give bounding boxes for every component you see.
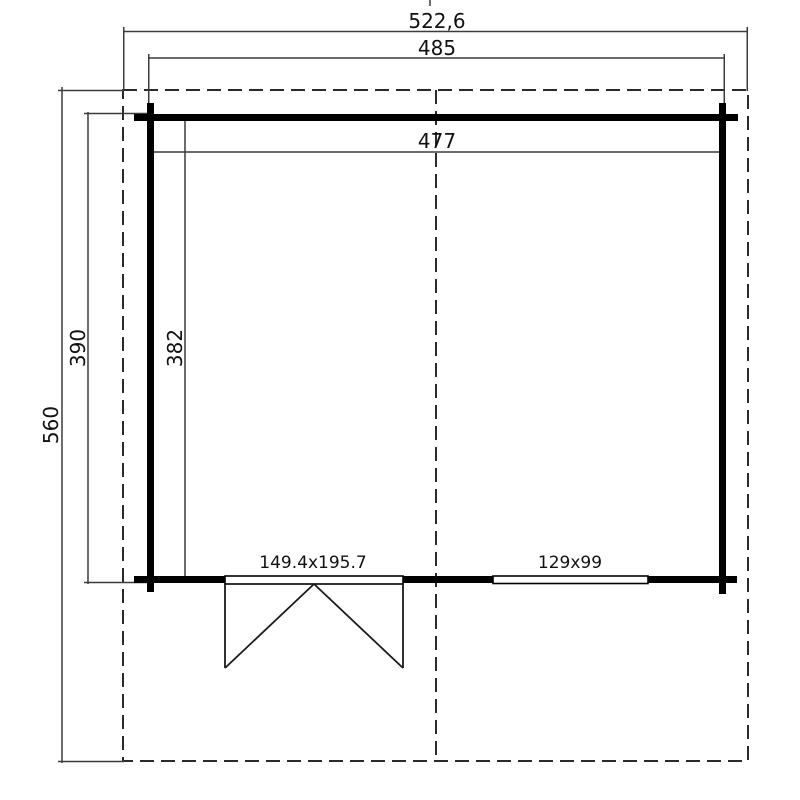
door-leaf-right-swing [314, 584, 403, 668]
window-frame [493, 576, 648, 584]
door-frame [225, 576, 403, 584]
door-size-label: 149.4x195.7 [259, 553, 366, 573]
dimension-total-depth: 560 [39, 87, 124, 763]
door-leaf-left-swing [225, 584, 314, 668]
dimension-label-total-depth: 560 [39, 406, 63, 444]
front-window: 129x99 [493, 553, 648, 584]
dimension-inner-depth: 382 [163, 116, 187, 579]
floor-plan-drawing: 522,6 485 477 560 390 [0, 0, 800, 800]
dimension-label-outer-width: 485 [418, 36, 456, 60]
floor-plan-canvas: 522,6 485 477 560 390 [0, 0, 800, 800]
dimension-label-inner-depth: 382 [163, 329, 187, 367]
dimension-label-inner-width: 477 [418, 129, 456, 153]
double-door: 149.4x195.7 [225, 553, 403, 668]
dimension-label-total-width: 522,6 [408, 9, 465, 33]
dimension-inner-width: 477 [151, 129, 722, 153]
dimension-outer-depth: 390 [66, 112, 148, 584]
window-size-label: 129x99 [538, 553, 602, 573]
dimension-label-outer-depth: 390 [66, 329, 90, 367]
